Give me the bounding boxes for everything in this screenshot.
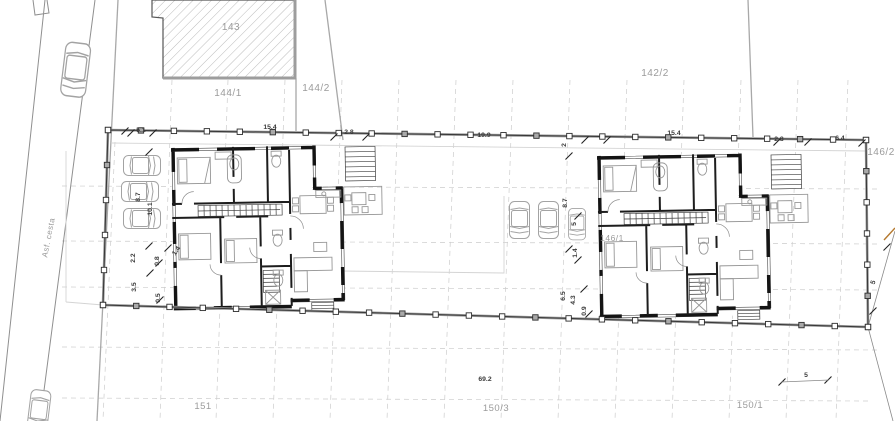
fence-marker — [599, 317, 604, 322]
dimension-label: 5 — [571, 222, 578, 226]
fence-marker — [171, 128, 176, 133]
dimension-label: 6.4 — [835, 135, 845, 142]
fence-marker — [366, 310, 371, 315]
fence-marker — [237, 129, 242, 134]
fence-marker — [764, 136, 769, 141]
fence-marker — [204, 129, 209, 134]
fence-marker — [267, 307, 272, 312]
fence-marker — [466, 313, 471, 318]
fence-marker — [134, 303, 139, 308]
fence-marker — [533, 315, 538, 320]
car-icon — [60, 42, 91, 98]
fence-marker — [566, 316, 571, 321]
fence-marker — [102, 232, 107, 237]
parcel-label: 146/2 — [867, 147, 895, 158]
fence-marker — [534, 133, 539, 138]
parcel-label: 144/1 — [214, 88, 242, 99]
dimension-label: 8.7 — [135, 192, 142, 202]
fence-marker — [600, 134, 605, 139]
dimension-label: 69.2 — [478, 376, 491, 383]
car-icon — [539, 202, 559, 239]
fence-marker — [731, 136, 736, 141]
fence-marker — [101, 267, 106, 272]
fence-marker — [797, 136, 802, 141]
car-icon — [124, 156, 161, 176]
dimension-label: 1.4 — [572, 248, 579, 258]
fence-marker — [865, 262, 870, 267]
fence-marker — [300, 308, 305, 313]
fence-marker — [402, 131, 407, 136]
fence-marker — [865, 324, 870, 329]
parcel-label: 151 — [194, 401, 211, 412]
dimension-label: 2.2 — [130, 253, 137, 263]
dimension-label: 6.5 — [560, 291, 567, 301]
fence-marker — [863, 137, 868, 142]
dimension-label: 2.8 — [344, 129, 354, 136]
fence-marker — [799, 322, 804, 327]
house-left-floorplan — [171, 144, 384, 314]
parcel-boundaries — [296, 0, 895, 421]
road — [0, 0, 118, 421]
fence-marker — [699, 135, 704, 140]
dimension-label: 5 — [804, 372, 808, 379]
dimension-label: 2 — [561, 143, 568, 147]
dimension-label: 10.1 — [147, 202, 154, 215]
dimension-label: 2.8 — [774, 136, 784, 143]
fence-marker — [369, 131, 374, 136]
fence-marker — [864, 231, 869, 236]
fence-marker — [200, 305, 205, 310]
dimension-label: 5 — [870, 280, 878, 286]
house-right-floorplan — [597, 152, 810, 322]
fence-marker — [433, 312, 438, 317]
fence-marker — [766, 321, 771, 326]
car-icon — [124, 209, 161, 229]
parcel-label: 146/1 — [600, 233, 624, 243]
road-label: Asf. cesta — [40, 217, 57, 258]
fence-marker — [732, 320, 737, 325]
dimension-label: 15.4 — [263, 124, 276, 131]
dimension-label: 4.3 — [570, 295, 577, 305]
dimension-label: 15.4 — [667, 130, 680, 137]
fence-marker — [100, 302, 105, 307]
car-icon — [26, 389, 51, 421]
fence-marker — [468, 132, 473, 137]
fence-marker — [832, 323, 837, 328]
fence-marker — [167, 304, 172, 309]
parcel-label: 144/2 — [302, 83, 330, 94]
fence-marker — [666, 319, 671, 324]
dimension-label: 19.9 — [477, 132, 490, 139]
site-plan-page: Asf. cesta 143144/1144/2142/2146/2146/11… — [0, 0, 895, 421]
fence-marker — [864, 200, 869, 205]
fence-marker — [864, 168, 869, 173]
site-plan-drawing: Asf. cesta 143144/1144/2142/2146/2146/11… — [0, 0, 895, 421]
fence-marker — [501, 133, 506, 138]
fence-marker — [699, 320, 704, 325]
fence-marker — [865, 293, 870, 298]
parcel-label: 150/3 — [483, 403, 509, 414]
fence-marker — [303, 130, 308, 135]
fence-marker — [105, 127, 110, 132]
fence-marker — [104, 162, 109, 167]
dimension-label: 3.5 — [131, 282, 138, 292]
dimension-label: 0.8 — [154, 256, 161, 266]
fence-marker — [567, 133, 572, 138]
parcel-label: 142/2 — [641, 68, 669, 79]
fence-marker — [633, 134, 638, 139]
fence-marker — [103, 197, 108, 202]
dimension-label: 5.1 — [136, 127, 146, 134]
dimension-label: 0.5 — [155, 293, 162, 303]
building-143 — [152, 0, 296, 78]
car-icon — [510, 202, 530, 239]
fence-marker — [435, 132, 440, 137]
parcel-label: 150/1 — [737, 400, 763, 411]
fence-marker — [233, 306, 238, 311]
dimension-label: 8.7 — [562, 198, 569, 208]
dimension-label: 0.9 — [581, 306, 588, 316]
fence-marker — [333, 309, 338, 314]
fence-marker — [499, 314, 504, 319]
fence-marker — [632, 318, 637, 323]
fence-marker — [400, 311, 405, 316]
parcel-label: 143 — [222, 22, 240, 33]
